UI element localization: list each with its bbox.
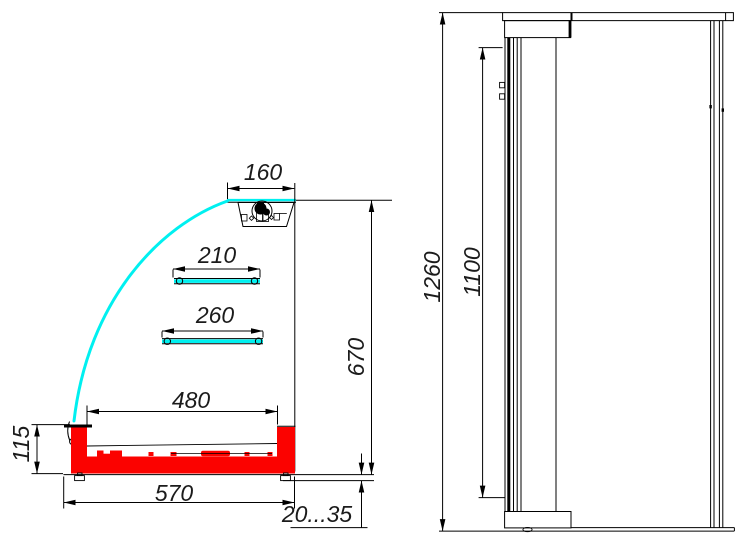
dim-label-upper-shelf: 210 bbox=[197, 242, 237, 268]
base-unit bbox=[64, 426, 375, 481]
dim-label-base-width: 570 bbox=[155, 480, 194, 506]
pin-icon bbox=[722, 108, 724, 111]
lower-shelf bbox=[162, 338, 263, 344]
hinge-bracket-icon bbox=[500, 94, 505, 99]
side-section-view: 160 210 260 480 570 bbox=[8, 159, 392, 528]
upper-shelf bbox=[174, 278, 260, 284]
dim-label-leg-height: 20...35 bbox=[281, 501, 353, 527]
drawing-sheet: 160 210 260 480 570 bbox=[0, 0, 751, 549]
dim-canopy-width: 160 bbox=[228, 159, 295, 199]
canopy-block bbox=[505, 21, 571, 38]
left-pillar bbox=[500, 38, 556, 512]
lamp-assembly bbox=[242, 201, 287, 222]
dim-base-width: 570 bbox=[64, 477, 295, 509]
dim-label-glass-height: 1100 bbox=[459, 247, 485, 297]
pin-icon bbox=[709, 105, 711, 108]
dim-label-canopy-width: 160 bbox=[244, 159, 283, 185]
dim-base-height: 115 bbox=[8, 425, 70, 474]
right-edge bbox=[709, 21, 724, 528]
dim-glass-height: 1100 bbox=[459, 48, 505, 498]
dim-lower-shelf: 260 bbox=[162, 302, 263, 338]
dim-label-base-height: 115 bbox=[8, 425, 34, 462]
hinge-bracket-icon bbox=[500, 82, 505, 87]
front-view: 1260 1100 bbox=[419, 13, 734, 532]
dim-upper-shelf: 210 bbox=[173, 242, 260, 278]
dim-body-height: 670 bbox=[296, 200, 392, 474]
dim-well-width: 480 bbox=[87, 387, 278, 425]
dim-label-body-height: 670 bbox=[343, 338, 369, 377]
dim-label-lower-shelf: 260 bbox=[195, 302, 235, 328]
dim-label-well-width: 480 bbox=[172, 387, 211, 413]
bottom-plinth bbox=[439, 512, 734, 532]
top-cornice bbox=[503, 13, 734, 21]
dim-label-overall-height: 1260 bbox=[419, 251, 445, 302]
condenser-parts bbox=[97, 451, 273, 458]
technical-drawing-canvas: 160 210 260 480 570 bbox=[0, 0, 751, 549]
deck-line bbox=[87, 444, 277, 447]
